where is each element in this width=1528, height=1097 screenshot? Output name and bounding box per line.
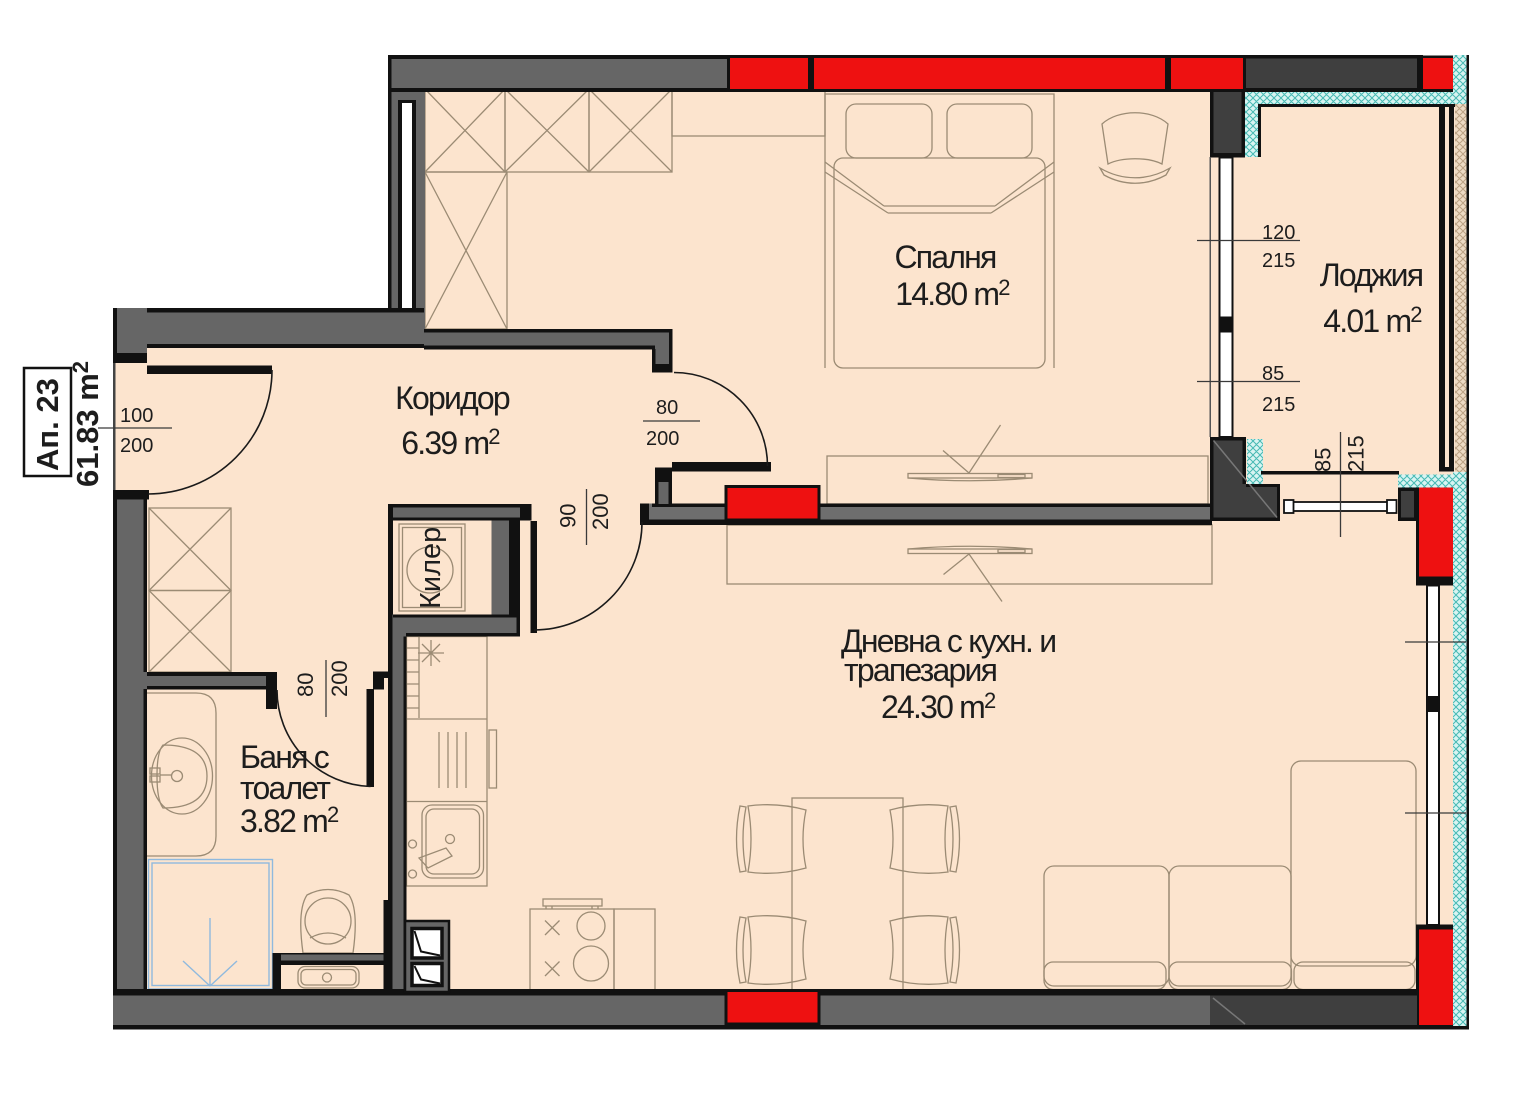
svg-text:Килер: Килер (415, 527, 447, 609)
svg-text:Спалня: Спалня (894, 239, 996, 275)
svg-text:200: 200 (588, 493, 613, 530)
svg-text:80: 80 (293, 673, 318, 697)
svg-text:4.01 m2: 4.01 m2 (1323, 302, 1422, 339)
svg-text:61.83 m2: 61.83 m2 (68, 361, 105, 487)
svg-text:215: 215 (1344, 435, 1369, 472)
svg-text:200: 200 (646, 428, 679, 450)
svg-text:90: 90 (556, 504, 581, 528)
svg-text:6.39 m2: 6.39 m2 (401, 424, 500, 461)
svg-text:Ап. 23: Ап. 23 (30, 378, 65, 471)
svg-text:24.30 m2: 24.30 m2 (881, 688, 996, 725)
svg-text:трапезария: трапезария (844, 652, 997, 688)
svg-text:200: 200 (327, 660, 352, 697)
svg-text:3.82 m2: 3.82 m2 (240, 802, 339, 839)
svg-text:тоалет: тоалет (240, 770, 331, 806)
svg-text:100: 100 (120, 405, 153, 427)
svg-text:85: 85 (1262, 363, 1284, 385)
svg-text:85: 85 (1311, 448, 1336, 472)
svg-text:215: 215 (1262, 250, 1295, 272)
svg-text:Коридор: Коридор (395, 380, 510, 416)
svg-text:120: 120 (1262, 222, 1295, 244)
svg-text:80: 80 (656, 397, 678, 419)
svg-text:14.80 m2: 14.80 m2 (895, 275, 1010, 312)
svg-text:Лоджия: Лоджия (1320, 257, 1423, 293)
svg-text:200: 200 (120, 435, 153, 457)
svg-text:215: 215 (1262, 394, 1295, 416)
